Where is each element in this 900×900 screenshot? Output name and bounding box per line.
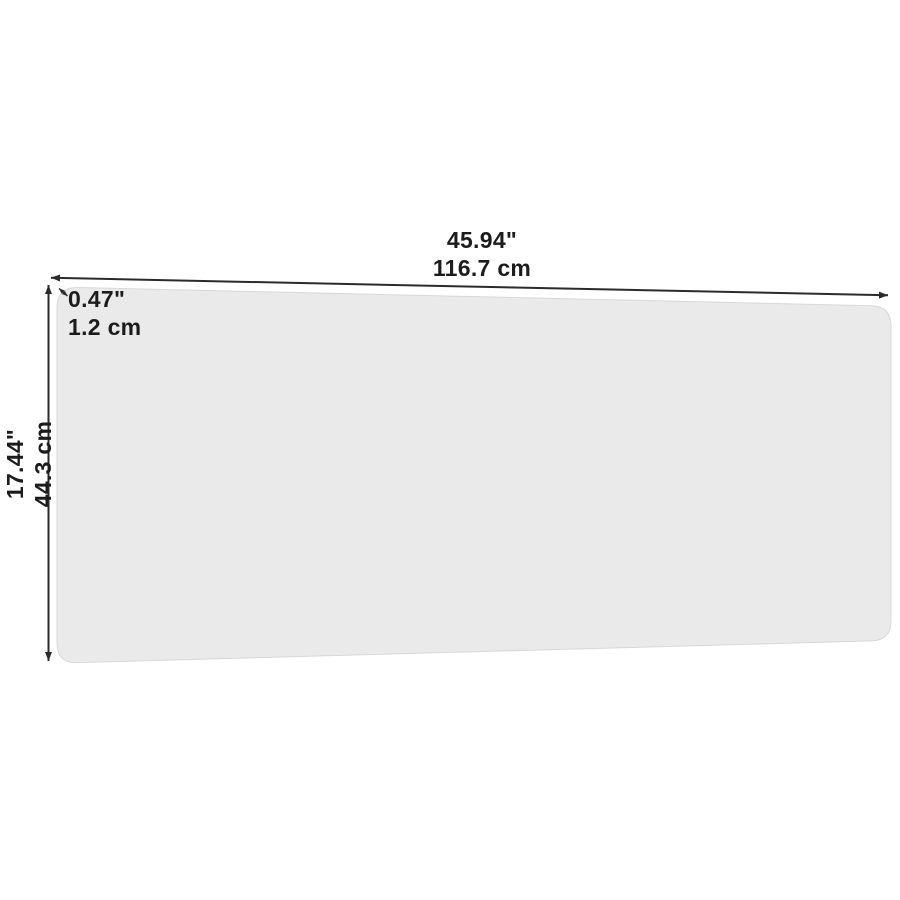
- width-inches-value: 45.94": [433, 226, 531, 254]
- height-inches-value: 17.44": [1, 421, 29, 508]
- panel-shape: [57, 288, 891, 663]
- width-cm-value: 116.7 cm: [433, 254, 531, 282]
- dimension-diagram-graphic: [0, 0, 900, 900]
- thickness-inches-value: 0.47": [68, 285, 141, 313]
- product-dimension-diagram: 45.94" 116.7 cm 17.44" 44.3 cm 0.47" 1.2…: [0, 0, 900, 900]
- height-cm-value: 44.3 cm: [29, 421, 57, 508]
- width-dimension-label: 45.94" 116.7 cm: [433, 226, 531, 282]
- thickness-cm-value: 1.2 cm: [68, 313, 141, 341]
- thickness-dimension-label: 0.47" 1.2 cm: [68, 285, 141, 341]
- height-dimension-label: 17.44" 44.3 cm: [1, 421, 57, 508]
